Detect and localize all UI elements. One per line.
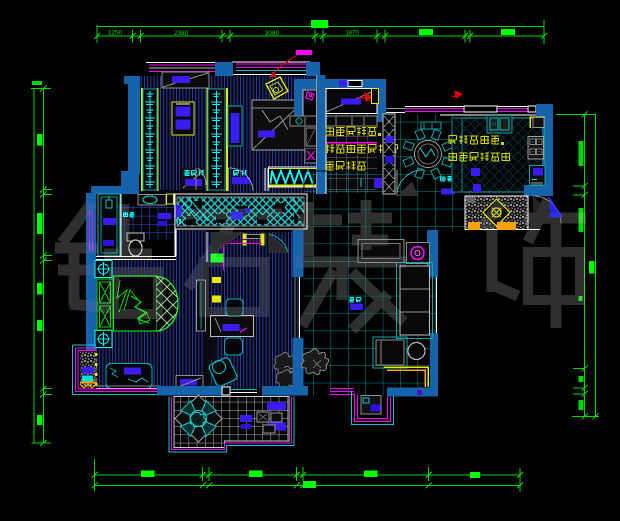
svg-text:2380: 2380 [174, 30, 189, 37]
svg-text:1870: 1870 [345, 31, 359, 37]
svg-text:3080: 3080 [265, 30, 280, 37]
svg-text:1250: 1250 [108, 30, 123, 37]
